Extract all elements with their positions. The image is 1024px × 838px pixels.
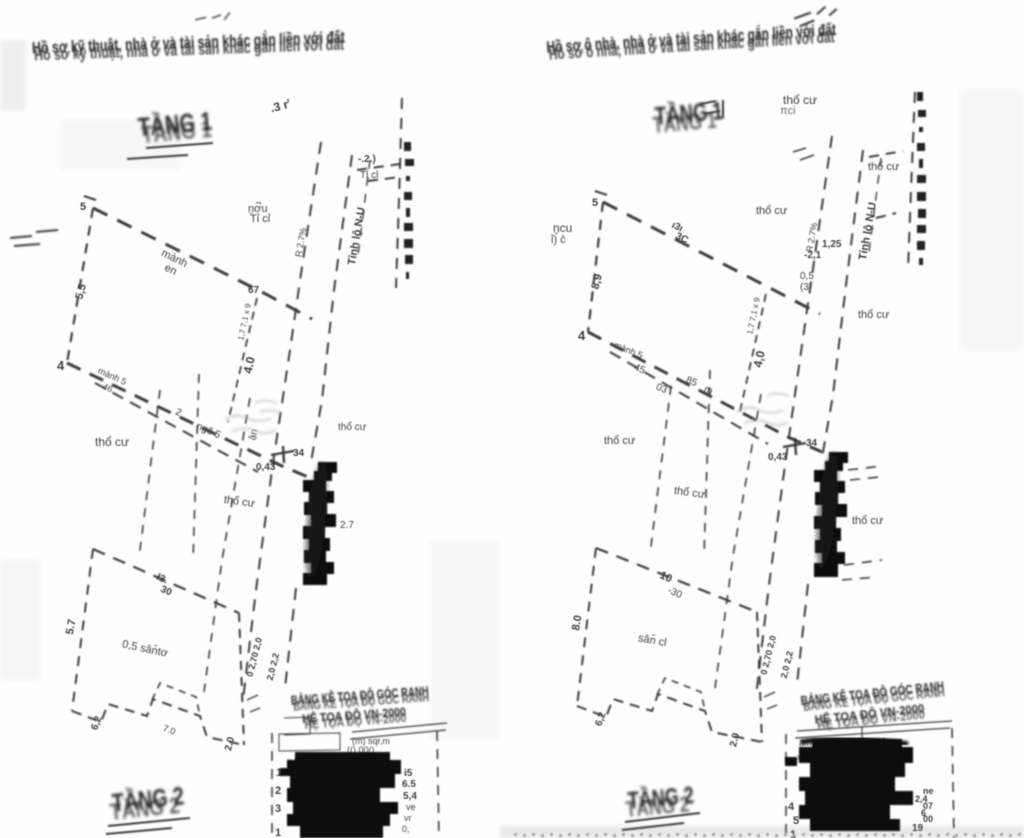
svg-text:2.7: 2.7 — [340, 520, 354, 531]
svg-text:19: 19 — [912, 823, 924, 834]
svg-text:thổ cư: thổ cư — [858, 309, 890, 321]
svg-text:ỉ) c̄: ỉ) c̄ — [551, 234, 566, 246]
svg-text:5: 5 — [793, 815, 799, 827]
svg-text:5,4: 5,4 — [403, 791, 417, 802]
svg-text:0,5: 0,5 — [800, 271, 814, 282]
svg-text:thổ cư: thổ cư — [95, 435, 129, 449]
svg-text:thổ cư: thổ cư — [852, 515, 884, 527]
svg-text:2: 2 — [275, 785, 281, 797]
svg-text:0,43: 0,43 — [768, 452, 788, 463]
svg-text:πcὶ: πcὶ — [780, 105, 796, 117]
svg-text:TẦNG 1: TẦNG 1 — [652, 106, 718, 138]
svg-text:i5: i5 — [404, 768, 413, 779]
svg-text:0,43: 0,43 — [256, 462, 276, 473]
svg-text:(3!: (3! — [800, 282, 812, 293]
svg-text:Tỉ cỉ: Tỉ cỉ — [250, 213, 271, 225]
svg-text:thổ cư: thổ cư — [756, 205, 788, 217]
svg-text:thổ cư: thổ cư — [868, 161, 900, 173]
svg-text:4: 4 — [788, 801, 795, 813]
svg-text:ṉcu: ṉcu — [553, 221, 572, 235]
svg-text:-2,1: -2,1 — [804, 250, 822, 261]
svg-text:5: 5 — [592, 197, 598, 209]
svg-text:1: 1 — [275, 827, 281, 838]
svg-text:4: 4 — [57, 358, 65, 373]
svg-text:0,: 0, — [402, 824, 410, 834]
svg-text:34: 34 — [293, 448, 305, 459]
svg-text:5: 5 — [80, 201, 86, 213]
svg-text:ve: ve — [406, 802, 416, 812]
svg-text:3: 3 — [275, 803, 281, 815]
svg-text:thổ cư: thổ cư — [338, 421, 367, 433]
svg-text:67: 67 — [248, 285, 260, 296]
svg-text:6.5: 6.5 — [402, 779, 416, 790]
svg-text:vr: vr — [404, 813, 412, 823]
svg-text:thổ cư: thổ cư — [604, 435, 636, 447]
svg-text:Tl cl: Tl cl — [360, 170, 378, 181]
svg-text:-.2.): -.2.) — [358, 154, 376, 165]
svg-text:34: 34 — [806, 438, 818, 449]
svg-text:4: 4 — [578, 328, 586, 343]
svg-text:1,25: 1,25 — [822, 239, 842, 250]
svg-text:00: 00 — [923, 814, 933, 824]
